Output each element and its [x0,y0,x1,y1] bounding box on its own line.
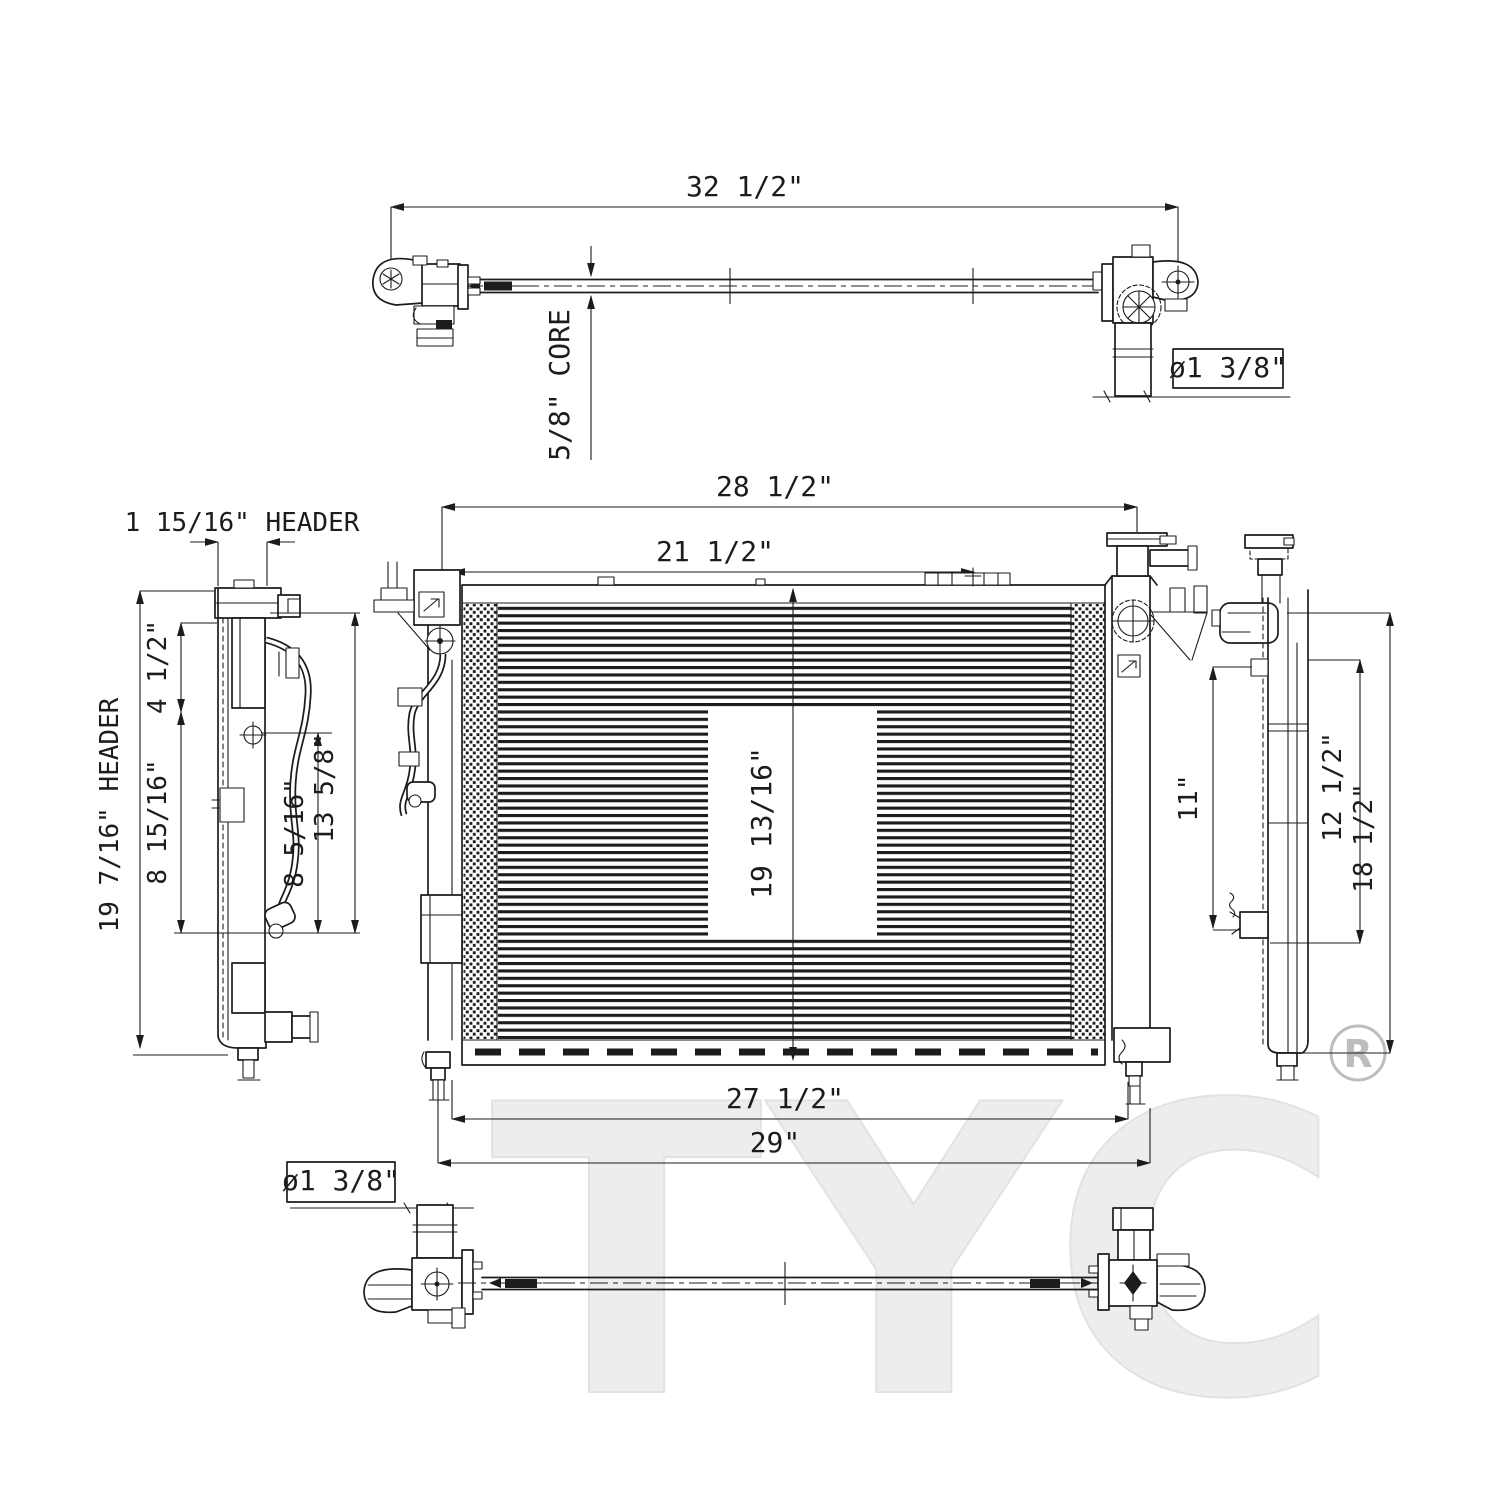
brand-watermark: TYC R [490,1022,1385,1487]
dim-mid-label: 12 1/2" [1318,732,1348,842]
dim-core-height-label: 19 13/16" [745,747,778,899]
dim-upper-port: 4 1/2" [143,620,217,714]
dim-width-upper: 28 1/2" [442,470,1137,586]
pipe-diameter-bottom-label: ø1 3/8" [282,1164,400,1197]
pipe-diameter-top-label: ø1 3/8" [1169,351,1287,384]
right-side-body [1212,535,1308,1080]
bottom-view-left-fitting [364,1205,482,1328]
drawing-canvas: TYC R 32 1/2" 5/8" CORE [0,0,1500,1500]
dim-bracket-left-label: 8 15/16" [143,759,173,884]
dim-mid: 12 1/2" [1270,660,1360,943]
top-view-core-bar [455,268,1108,304]
dim-width-upper-label: 28 1/2" [716,470,834,503]
dim-inner-label: 11" [1174,775,1204,822]
dim-header-depth: 1 15/16" HEADER [125,508,360,586]
registered-mark-letter: R [1343,1032,1372,1076]
dim-bracket-right-label: 8 5/16" [280,778,310,888]
front-view: 28 1/2" 21 1/2" [374,470,1207,1163]
dim-width-inner-top: 21 1/2" [452,535,974,586]
radiator-core: 19 13/16" [462,568,1105,1065]
right-side-view: 11" 12 1/2" 18 1/2" [1174,535,1390,1080]
dim-core-depth: 5/8" CORE [543,246,591,461]
top-view: 32 1/2" 5/8" CORE [373,170,1290,461]
callout-pipe-diameter-top: ø1 3/8" [1169,349,1287,388]
dim-core-depth-label: 5/8" CORE [543,309,576,461]
front-view-left-tank [374,562,462,1100]
left-side-view: 1 15/16" HEADER [95,508,360,1080]
dim-header-height-label: 19 7/16" HEADER [95,697,125,932]
dim-bracket-left: 8 15/16" [143,712,181,933]
dim-outer-label: 18 1/2" [1349,783,1379,893]
dim-header-depth-label: 1 15/16" HEADER [125,508,360,538]
watermark-text: TYC [490,1022,1350,1487]
radiator-technical-drawing-page: TYC R 32 1/2" 5/8" CORE [0,0,1500,1500]
dim-width-inner-bottom-label: 27 1/2" [726,1082,844,1115]
dim-overall-width-label: 32 1/2" [686,170,804,203]
dim-width-overall-bottom-label: 29" [750,1126,801,1159]
dim-width-inner-top-label: 21 1/2" [656,535,774,568]
dim-port-span: 13 5/8" [174,613,360,933]
dim-overall-width: 32 1/2" [391,170,1178,270]
dim-upper-port-label: 4 1/2" [143,620,173,714]
top-view-left-fitting [373,256,480,346]
dim-inner: 11" [1174,667,1252,930]
dim-port-span-label: 13 5/8" [310,733,340,843]
